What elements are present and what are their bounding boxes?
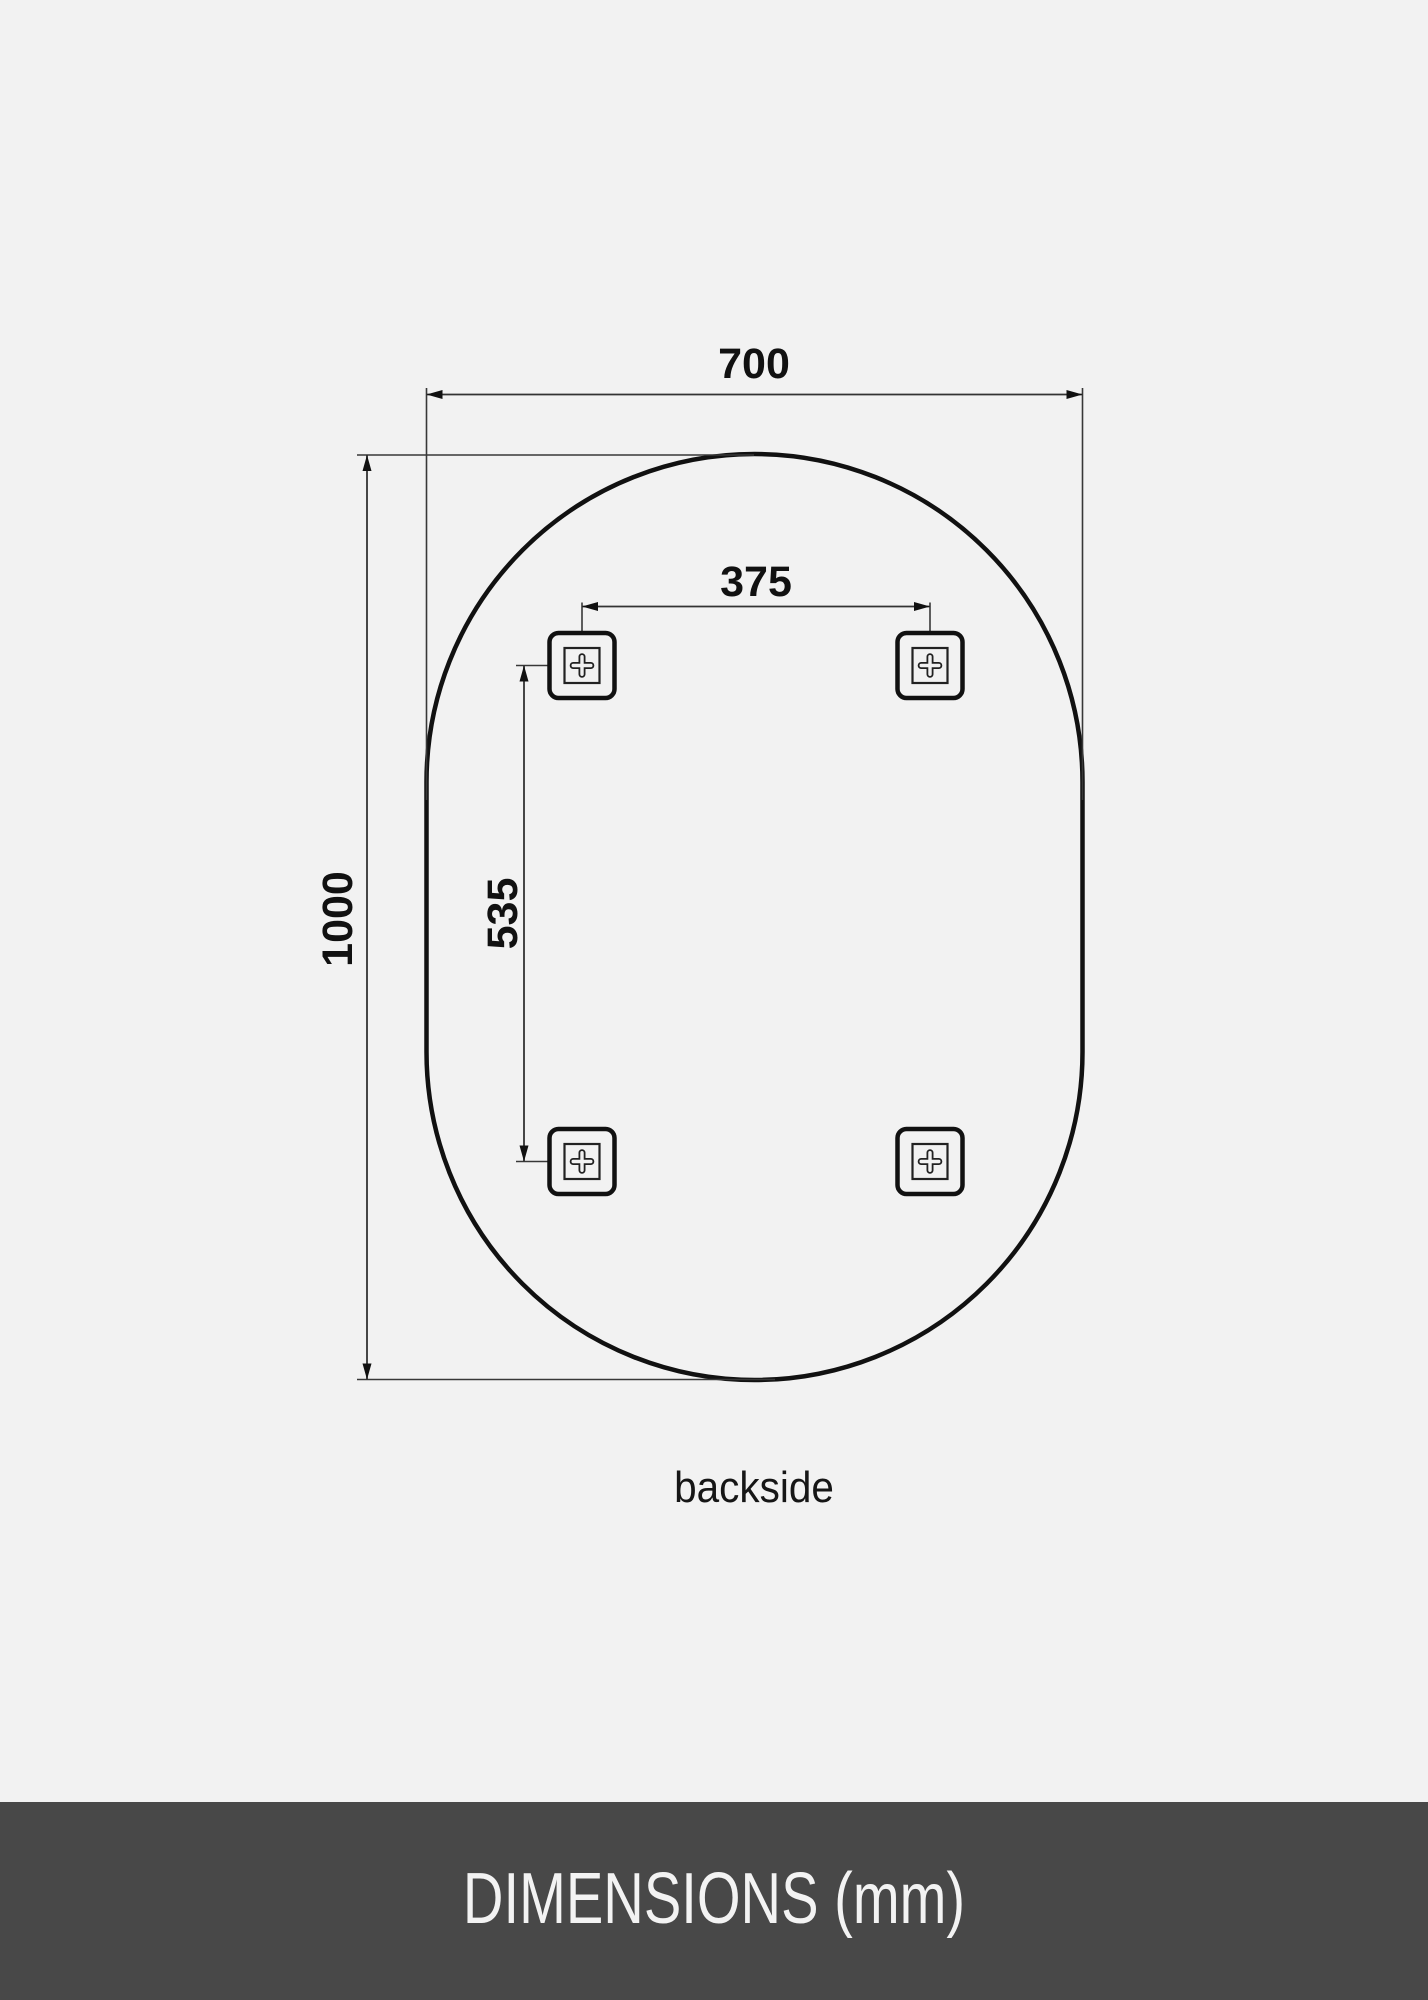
svg-text:700: 700 [718,340,790,388]
svg-text:1000: 1000 [314,871,362,967]
svg-text:backside: backside [674,1462,834,1511]
svg-text:535: 535 [479,878,527,950]
svg-text:375: 375 [720,558,792,606]
svg-text:DIMENSIONS (mm): DIMENSIONS (mm) [463,1858,965,1938]
